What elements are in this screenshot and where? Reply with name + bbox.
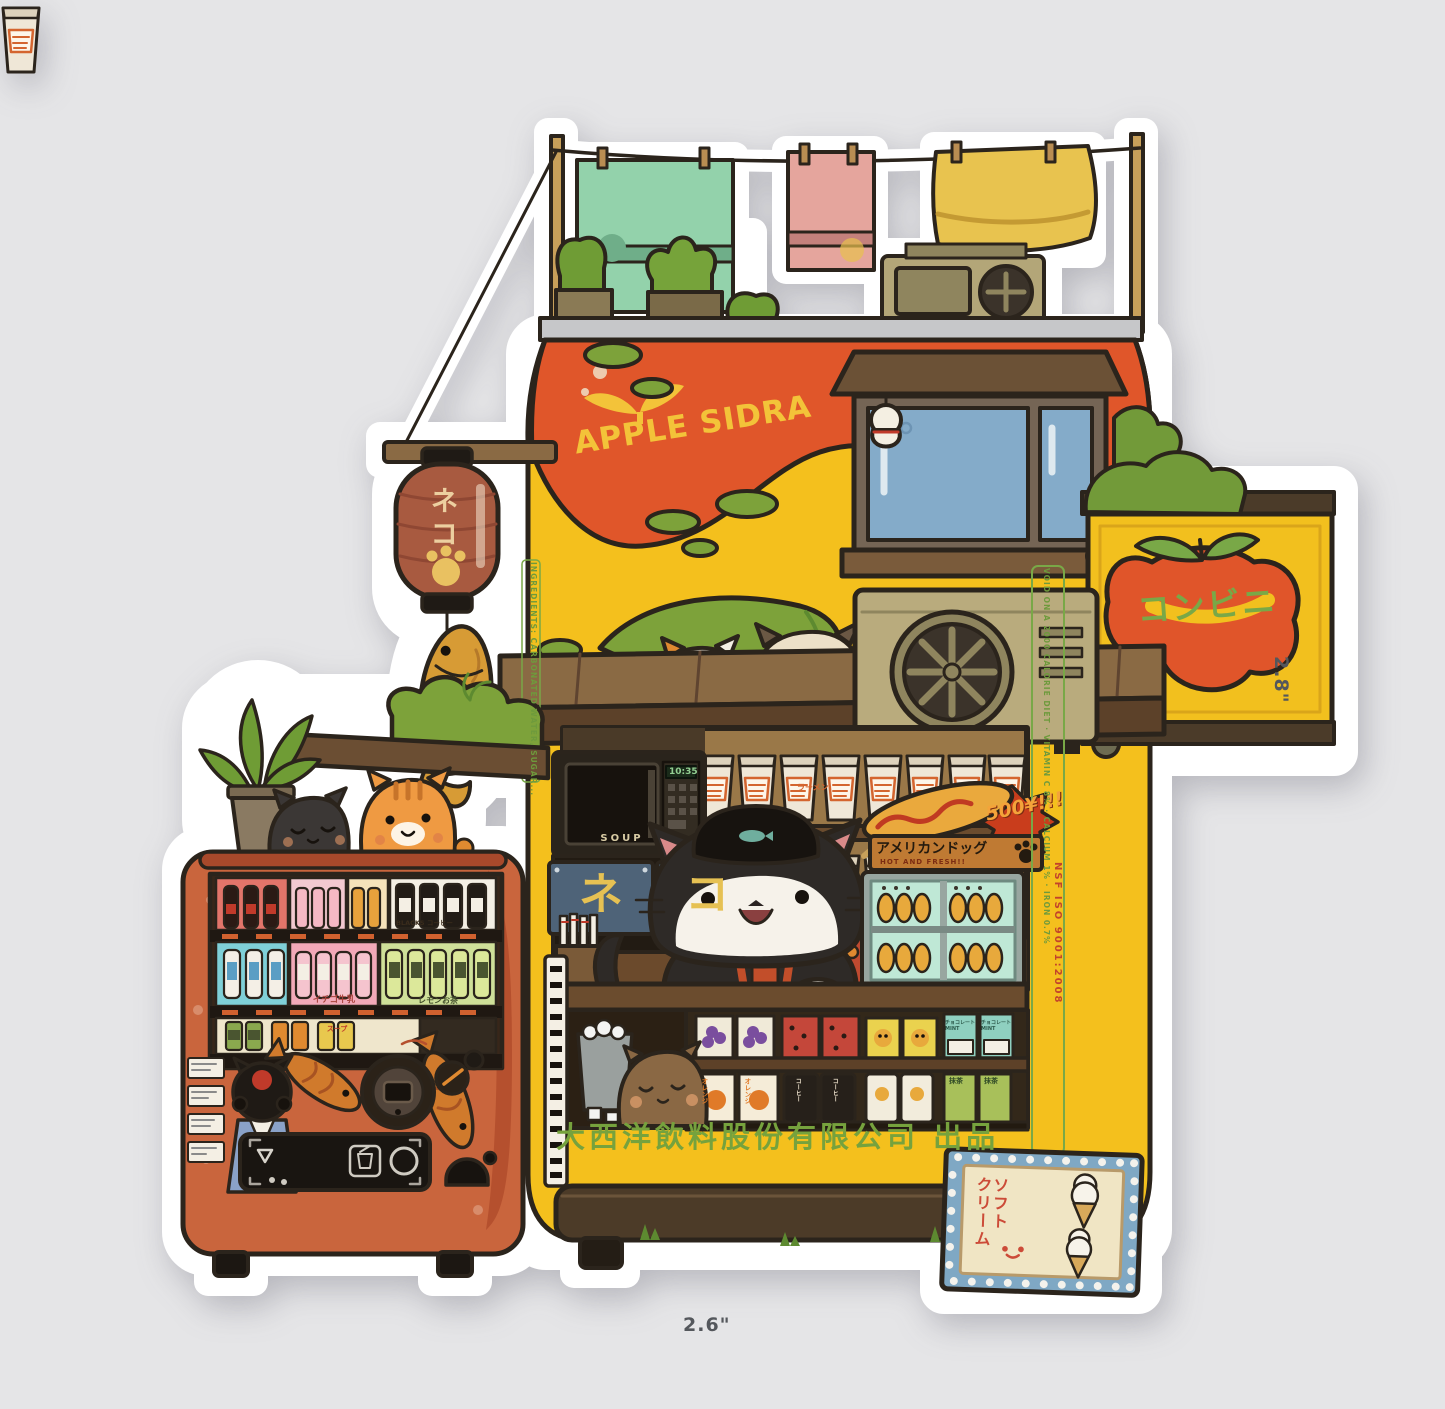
orange-pack-label-1: オレンジ <box>700 1078 707 1122</box>
lantern-text: ネコ <box>428 486 457 552</box>
microwave-clock: 10:35 <box>669 768 698 777</box>
corndog-title: アメリカンドッグ <box>876 842 1022 857</box>
counter-sign-char-1: ネ <box>549 872 653 918</box>
company-text: 大西洋飲料股份有限公司 出品 <box>556 1122 1038 1152</box>
clerk-cap <box>694 806 819 864</box>
softcream-sign-text: ソフト クリーム <box>971 1176 1007 1249</box>
choco-mint-label-2: チョコレート MINT <box>981 1020 1013 1032</box>
corndog-subtitle: HOT AND FRESH!! <box>880 859 966 866</box>
vending-display <box>210 874 502 1068</box>
dispenser-tray <box>240 1134 430 1190</box>
dimension-height-label: 2.8" <box>1270 656 1290 704</box>
bell-shape <box>446 1159 488 1185</box>
dimension-width-label: 2.6" <box>683 1316 731 1336</box>
cup-ramen-label: ラーメン <box>797 784 829 792</box>
vending-coffee-caption: BLACKS コーヒー <box>396 920 453 927</box>
towel-pink <box>788 144 874 270</box>
roof-girder <box>540 318 1142 340</box>
sticker-illustration <box>0 0 1445 1409</box>
sticker-mockup-scene: APPLE SIDRA ネコ コンビニ ネ コ SOUP 10:35 ラーメン … <box>0 0 1445 1409</box>
nutrition-text: VOID ON A 2000 CALORIE DIET · VITAMIN C … <box>1042 568 1050 945</box>
iso-text: NSF ISO 9001:2008 <box>1052 862 1063 1004</box>
sleeping-cat <box>619 1042 707 1126</box>
coffee-can-label-2: コーヒー <box>831 1078 837 1120</box>
vending-strawberry-caption: イチゴ牛乳 <box>292 996 376 1005</box>
towel-yellow <box>933 142 1096 251</box>
corndog-warmer <box>862 872 1024 988</box>
orange-pack-label-2: オレンジ <box>743 1078 750 1122</box>
vending-soup-can-label: スープ <box>317 1026 357 1033</box>
vending-lemon-caption: レモンお茶 <box>384 997 492 1005</box>
rooftop-ac-unit <box>882 244 1044 328</box>
matcha-label-1: 抹茶 <box>949 1078 963 1085</box>
black-cat <box>269 788 348 858</box>
coffee-can-label-1: コーヒー <box>794 1078 800 1120</box>
matcha-label-2: 抹茶 <box>984 1078 998 1085</box>
counter-sign-char-2: コ <box>653 872 761 918</box>
ingredients-text: INGREDIENTS: CARBONATED WATER, SUGAR... <box>529 562 537 796</box>
coin-slot <box>362 1056 434 1128</box>
counter-sign-text: ネ コ <box>549 872 761 918</box>
choco-mint-label-1: チョコレート MINT <box>945 1020 977 1032</box>
microwave-label: SOUP <box>586 834 658 845</box>
counter <box>563 984 1027 1010</box>
